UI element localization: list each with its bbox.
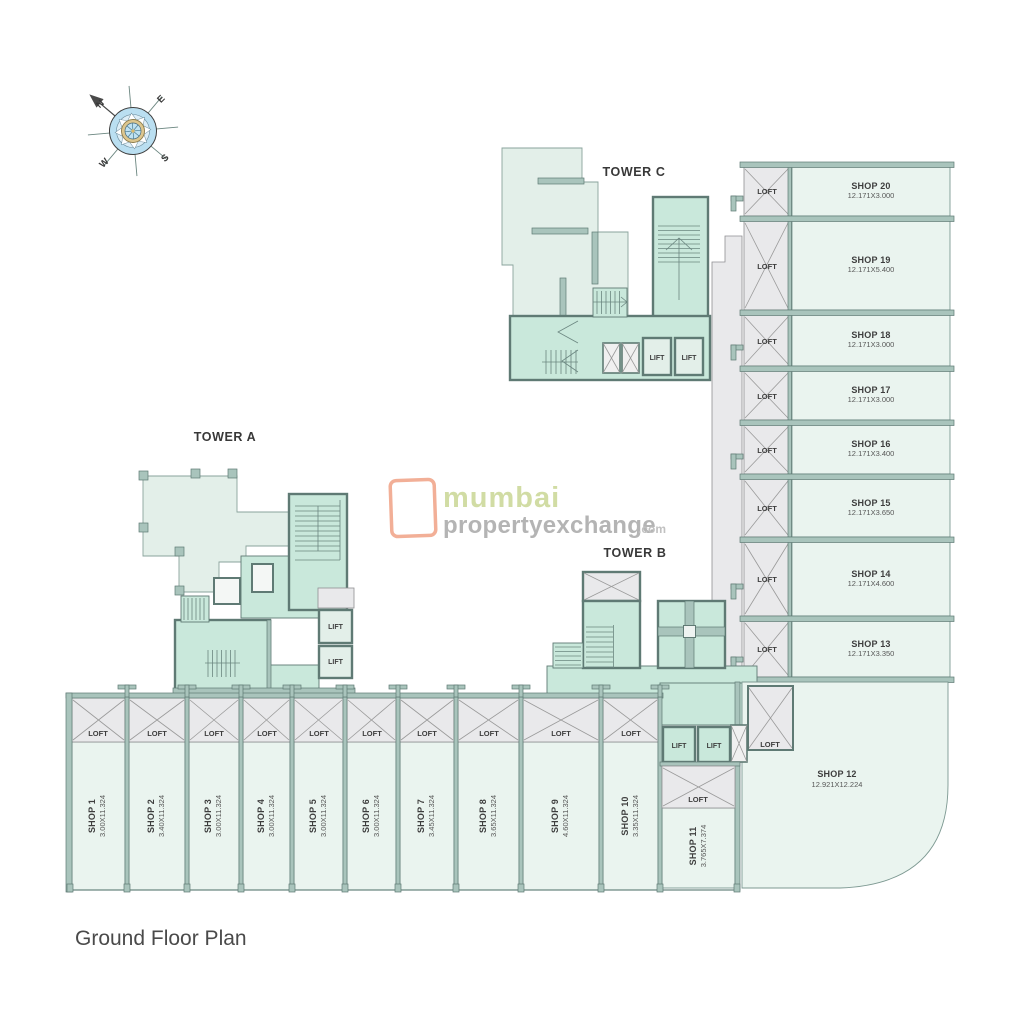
floor-plan-page: N E S W (0, 0, 1024, 1024)
shop-dims: 12.171X3.350 (848, 649, 895, 658)
tower-a-duct (318, 588, 354, 608)
shop-dims: 12.171X4.600 (848, 579, 895, 588)
shop-dims: 12.171X3.000 (848, 340, 895, 349)
lift-label: LIFT (650, 355, 665, 362)
loft-label: LOFT (204, 729, 224, 738)
lift-label: LIFT (707, 743, 722, 750)
shop-dims: 3.00X11.324 (372, 795, 381, 837)
bottom-lifts: LIFT LIFT (663, 725, 747, 762)
shop-dims: 12.171X3.000 (848, 395, 895, 404)
tower-a-label: TOWER A (194, 430, 257, 444)
shop-label: SHOP 17 (851, 385, 890, 395)
tower-a-lobby (175, 620, 270, 693)
loft-label: LOFT (757, 392, 777, 401)
tower-c-upper-stair (593, 288, 627, 317)
shop-label: SHOP 11 (688, 827, 698, 866)
loft-label: LOFT (362, 729, 382, 738)
watermark-brand: mumbai (443, 482, 560, 514)
shop-label: SHOP 5 (308, 799, 318, 833)
loft-label: LOFT (757, 337, 777, 346)
shop-label: SHOP 15 (851, 498, 890, 508)
shop-label: SHOP 12 (817, 769, 856, 779)
shop-label: SHOP 20 (851, 181, 890, 191)
loft-label: LOFT (551, 729, 571, 738)
shop-label: SHOP 6 (361, 799, 371, 833)
floor-plan-svg: N E S W (0, 0, 1024, 1024)
shop-label: SHOP 3 (203, 799, 213, 833)
shop-row: LOFT SHOP 13 12.171X3.350 (744, 621, 950, 677)
page-title: Ground Floor Plan (75, 927, 247, 950)
shop-dims: 12.171X3.650 (848, 508, 895, 517)
shop-dims: 3.65X11.324 (489, 795, 498, 837)
shop-label: SHOP 2 (146, 799, 156, 833)
loft-label: LOFT (757, 645, 777, 654)
shop-label: SHOP 14 (851, 569, 890, 579)
shop-row: LOFT SHOP 18 12.171X3.000 (744, 315, 950, 366)
shop-dims: 12.171X3.000 (848, 191, 895, 200)
compass-rose: N E S W (60, 60, 196, 195)
tower-b-lift-lobby (660, 683, 742, 725)
tower-b-label: TOWER B (604, 546, 667, 560)
tower-c-stairwell (653, 197, 708, 330)
compass-e: E (155, 93, 167, 105)
loft-label: LOFT (147, 729, 167, 738)
watermark: mumbai propertyexchange .com (390, 479, 666, 539)
shop-label: SHOP 18 (851, 330, 890, 340)
compass-s: S (159, 152, 171, 164)
lift-label: LIFT (672, 743, 687, 750)
shop-label: SHOP 9 (550, 799, 560, 833)
watermark-tld: .com (638, 522, 666, 536)
shop-row: LOFT SHOP 17 12.171X3.000 (744, 371, 950, 420)
shop-dims: 4.60X11.324 (561, 795, 570, 837)
compass-w: W (97, 156, 111, 170)
shop-label: SHOP 4 (256, 799, 266, 833)
tower-a-upper-stair (181, 596, 209, 622)
shop-dims: 3.00X11.324 (319, 795, 328, 837)
shop-dims: 3.40X11.324 (157, 795, 166, 837)
lift-label: LIFT (682, 355, 697, 362)
loft-label: LOFT (757, 504, 777, 513)
watermark-logo-icon (390, 479, 436, 537)
bottom-shop-row: LOFT LOFT LOFT LOFT LOFT LOFT LOFT LOFT … (66, 682, 747, 892)
shop-dims: 12.921X12.224 (812, 780, 863, 789)
lift-label: LIFT (328, 659, 343, 666)
compass-body (60, 60, 196, 195)
loft-label: LOFT (621, 729, 641, 738)
loft-label: LOFT (757, 575, 777, 584)
compass-n: N (94, 98, 107, 111)
shop-dims: 3.45X11.324 (427, 795, 436, 837)
loft-label: LOFT (760, 740, 780, 749)
loft-label: LOFT (757, 187, 777, 196)
shop-label: SHOP 19 (851, 255, 890, 265)
watermark-domain: propertyexchange (443, 512, 656, 539)
loft-label: LOFT (88, 729, 108, 738)
loft-label: LOFT (257, 729, 277, 738)
shop-dims: 3.00X11.324 (267, 795, 276, 837)
shop-row: LOFT SHOP 20 12.171X3.000 (744, 167, 950, 216)
shop-dims: 12.171X5.400 (848, 265, 895, 274)
tower-b-stairwell (583, 601, 640, 668)
shop-label: SHOP 16 (851, 439, 890, 449)
shop-11-loft: LOFT (660, 762, 740, 808)
tower-c: LIFT LIFT TOWER C (502, 148, 710, 380)
shop-12-area: LOFT SHOP 12 12.921X12.224 (742, 682, 948, 888)
loft-label: LOFT (479, 729, 499, 738)
shop-label: SHOP 10 (620, 796, 630, 835)
shop-dims: 3.35X11.324 (631, 795, 640, 837)
shop-dims: 3.00X11.324 (98, 795, 107, 837)
tower-a-duct (214, 578, 240, 604)
shop-dims: 3.00X11.324 (214, 795, 223, 837)
shop-label: SHOP 13 (851, 639, 890, 649)
loft-label: LOFT (757, 446, 777, 455)
shop-label: SHOP 7 (416, 799, 426, 833)
shop-row: LOFT SHOP 19 12.171X5.400 (744, 221, 950, 310)
shop-row: LOFT SHOP 16 12.171X3.400 (744, 425, 950, 474)
loft-label: LOFT (417, 729, 437, 738)
shop-row: LOFT SHOP 15 12.171X3.650 (744, 479, 950, 537)
shop-dims: 3.765X7.374 (699, 825, 708, 868)
tower-c-label: TOWER C (603, 165, 666, 179)
right-shop-column: LOFT SHOP 20 12.171X3.000 LOFT SHOP 19 1… (731, 162, 954, 683)
loft-label: LOFT (309, 729, 329, 738)
shop-dims: 12.171X3.400 (848, 449, 895, 458)
shop-label: SHOP 1 (87, 799, 97, 833)
tower-a-duct (252, 564, 273, 592)
loft-label: LOFT (757, 262, 777, 271)
shop-label: SHOP 8 (478, 799, 488, 833)
tower-a: LIFT LIFT TOWER A (139, 430, 355, 694)
loft-label: LOFT (688, 795, 708, 804)
shop-row: LOFT SHOP 14 12.171X4.600 (744, 542, 950, 616)
lift-label: LIFT (328, 624, 343, 631)
